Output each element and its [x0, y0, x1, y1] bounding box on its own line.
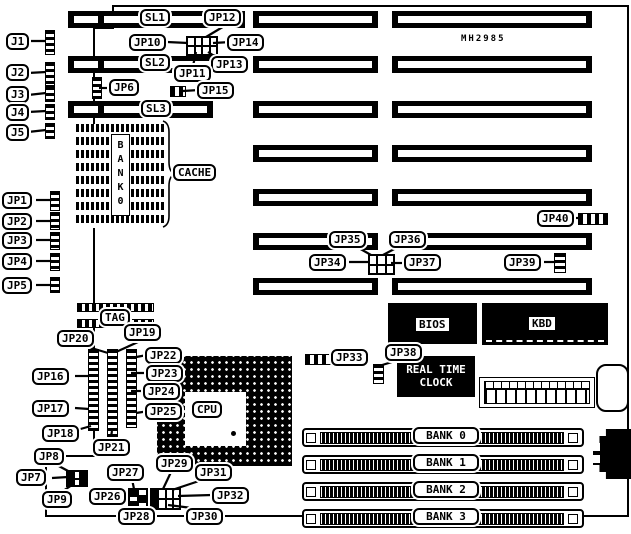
motherboard-jumper-diagram: BANK0 REAL TIME CLOCK [0, 0, 631, 534]
label-bank3: BANK 3 [413, 508, 479, 525]
label-j4: J4 [6, 104, 29, 121]
label-jp4: JP4 [2, 253, 32, 270]
label-sl3: SL3 [141, 100, 171, 117]
label-jp18: JP18 [42, 425, 79, 442]
label-j2: J2 [6, 64, 29, 81]
board-model-text: MH2985 [461, 34, 506, 44]
label-jp25: JP25 [145, 403, 182, 420]
label-jp33: JP33 [331, 349, 368, 366]
label-bank2: BANK 2 [413, 481, 479, 498]
label-kbd: KBD [527, 315, 557, 332]
label-jp27: JP27 [107, 464, 144, 481]
label-jp28: JP28 [118, 508, 155, 525]
label-jp37: JP37 [404, 254, 441, 271]
label-j5: J5 [6, 124, 29, 141]
label-jp14: JP14 [227, 34, 264, 51]
label-j1: J1 [6, 33, 29, 50]
label-j3: J3 [6, 86, 29, 103]
label-bank1: BANK 1 [413, 454, 479, 471]
label-jp15: JP15 [197, 82, 234, 99]
label-sl1: SL1 [140, 9, 170, 26]
label-jp17: JP17 [32, 400, 69, 417]
label-bank0: BANK 0 [413, 427, 479, 444]
label-jp31: JP31 [195, 464, 232, 481]
label-jp38: JP38 [385, 344, 422, 361]
label-jp12: JP12 [204, 9, 241, 26]
label-jp39: JP39 [504, 254, 541, 271]
label-cpu: CPU [192, 401, 222, 418]
label-jp34: JP34 [309, 254, 346, 271]
label-jp19: JP19 [124, 324, 161, 341]
label-jp20: JP20 [57, 330, 94, 347]
label-jp24: JP24 [143, 383, 180, 400]
label-jp23: JP23 [146, 365, 183, 382]
label-jp16: JP16 [32, 368, 69, 385]
label-jp26: JP26 [89, 488, 126, 505]
label-jp2: JP2 [2, 213, 32, 230]
label-jp30: JP30 [186, 508, 223, 525]
label-jp40: JP40 [537, 210, 574, 227]
label-cache: CACHE [173, 164, 216, 181]
label-jp8: JP8 [34, 448, 64, 465]
label-bios: BIOS [414, 316, 451, 333]
label-jp10: JP10 [129, 34, 166, 51]
label-jp3: JP3 [2, 232, 32, 249]
label-jp1: JP1 [2, 192, 32, 209]
label-jp6: JP6 [109, 79, 139, 96]
label-jp35: JP35 [329, 231, 366, 248]
label-sl2: SL2 [140, 54, 170, 71]
label-jp29: JP29 [156, 455, 193, 472]
label-jp7: JP7 [16, 469, 46, 486]
label-jp36: JP36 [389, 231, 426, 248]
label-jp13: JP13 [211, 56, 248, 73]
label-jp11: JP11 [174, 65, 211, 82]
label-jp32: JP32 [212, 487, 249, 504]
label-jp9: JP9 [42, 491, 72, 508]
label-tag: TAG [100, 309, 130, 326]
label-jp21: JP21 [93, 439, 130, 456]
label-jp5: JP5 [2, 277, 32, 294]
label-jp22: JP22 [145, 347, 182, 364]
